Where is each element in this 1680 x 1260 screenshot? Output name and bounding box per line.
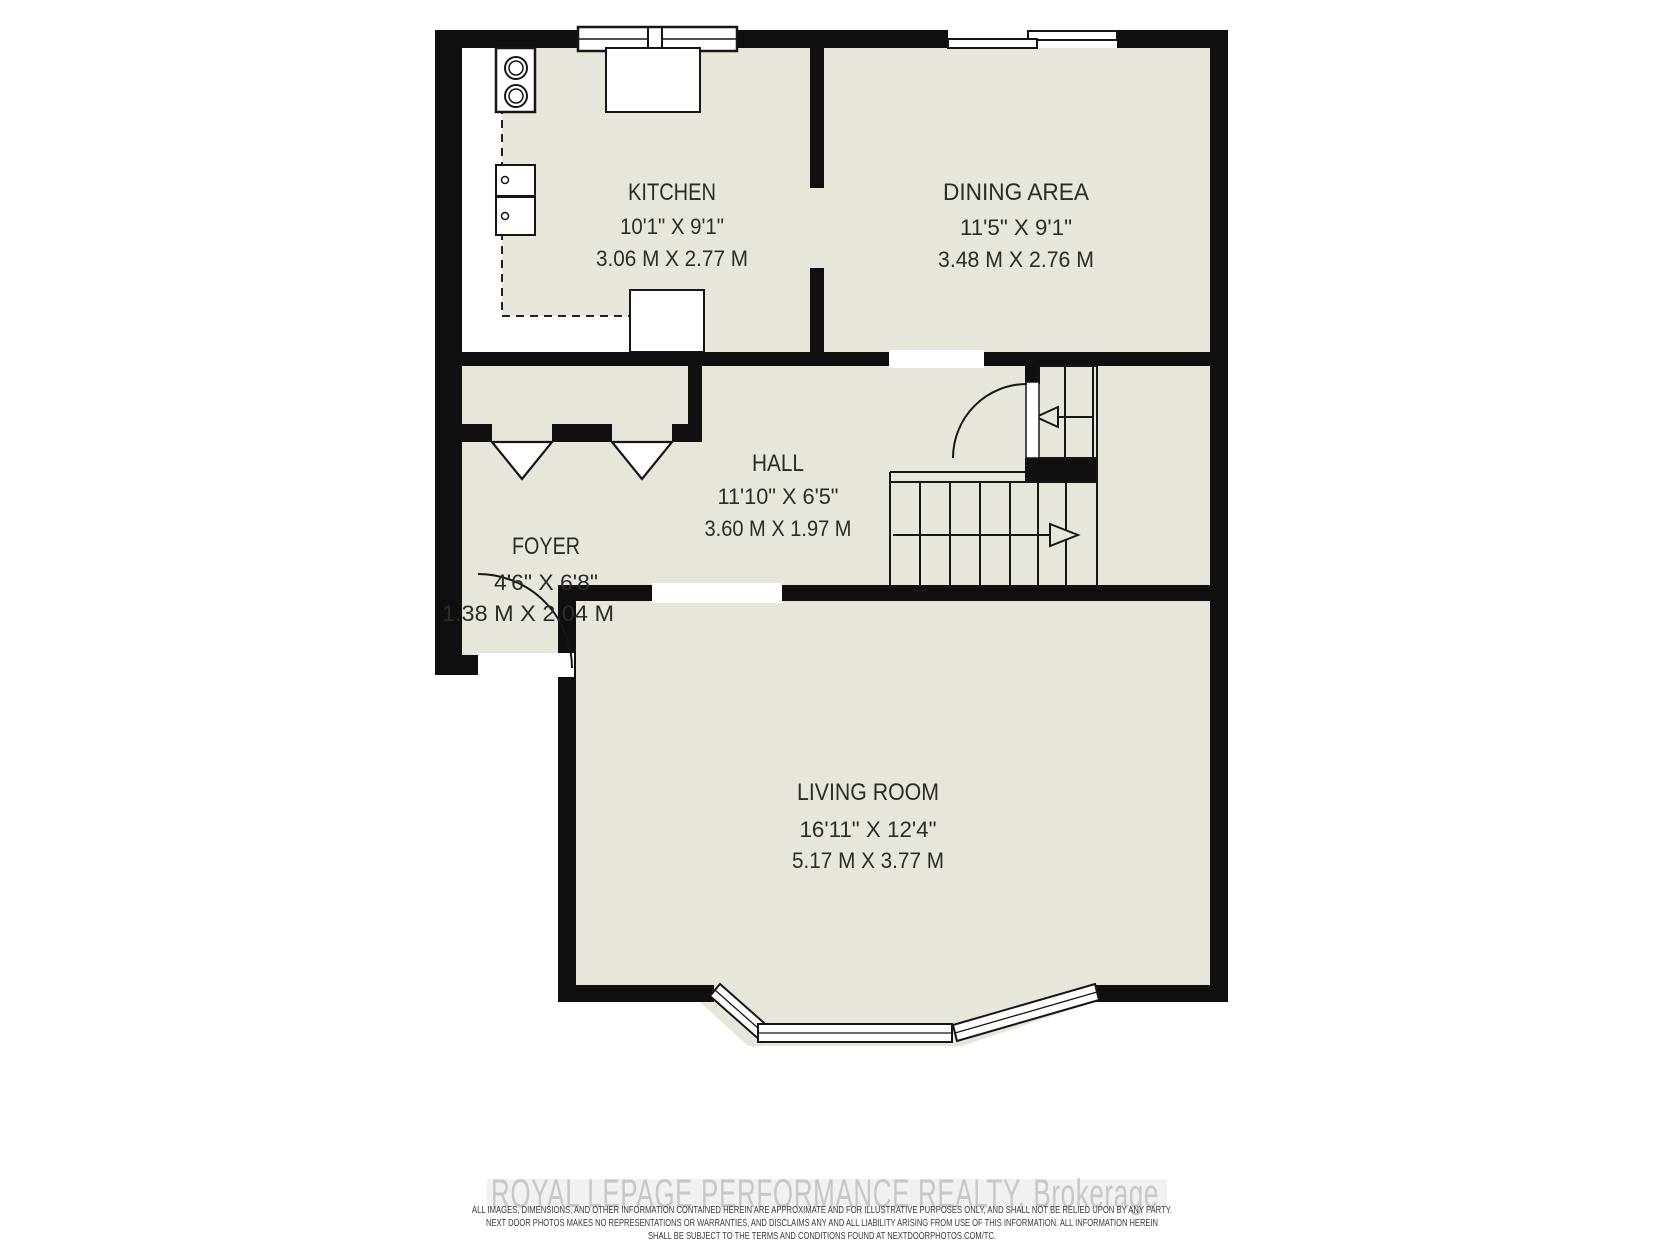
hall-dim-metric: 3.60 M X 1.97 M: [705, 516, 852, 541]
hall-label: HALL: [752, 450, 804, 477]
kitchen-label: KITCHEN: [628, 179, 716, 206]
fridge-icon: [606, 48, 700, 112]
kitchen-dim-metric: 3.06 M X 2.77 M: [596, 246, 748, 271]
disclaimer-line-2: NEXT DOOR PHOTOS MAKES NO REPRESENTATION…: [486, 1217, 1158, 1229]
disclaimer-line-1: ALL IMAGES, DIMENSIONS, AND OTHER INFORM…: [472, 1204, 1172, 1216]
stove-icon: [496, 48, 535, 112]
foyer-label: FOYER: [512, 533, 580, 560]
foyer-dim-metric: 1.38 M X 2.04 M: [442, 601, 614, 626]
foyer-dim-imperial: 4'6" X 6'8": [494, 570, 598, 595]
living-dim-imperial: 16'11" X 12'4": [800, 817, 937, 842]
sink-icon: [496, 165, 535, 235]
hall-living-opening: [652, 583, 782, 603]
dining-dim-metric: 3.48 M X 2.76 M: [938, 247, 1094, 272]
kitchen-dim-imperial: 10'1" X 9'1": [620, 214, 724, 239]
living-label: LIVING ROOM: [797, 779, 939, 806]
footer: ROYAL LEPAGE PERFORMANCE REALTY, Brokera…: [472, 1172, 1172, 1242]
floor-plan-page: KITCHEN 10'1" X 9'1" 3.06 M X 2.77 M DIN…: [0, 0, 1680, 1260]
foyer-door-opening: [478, 653, 574, 677]
disclaimer-line-3: SHALL BE SUBJECT TO THE TERMS AND CONDIT…: [648, 1230, 996, 1242]
hall-dim-imperial: 11'10" X 6'5": [718, 484, 839, 509]
dining-label: DINING AREA: [943, 179, 1089, 206]
dining-hall-opening: [889, 350, 984, 368]
dining-dim-imperial: 11'5" X 9'1": [960, 215, 1072, 240]
living-dim-metric: 5.17 M X 3.77 M: [792, 848, 944, 873]
floor-plan: KITCHEN 10'1" X 9'1" 3.06 M X 2.77 M DIN…: [0, 0, 1680, 1260]
